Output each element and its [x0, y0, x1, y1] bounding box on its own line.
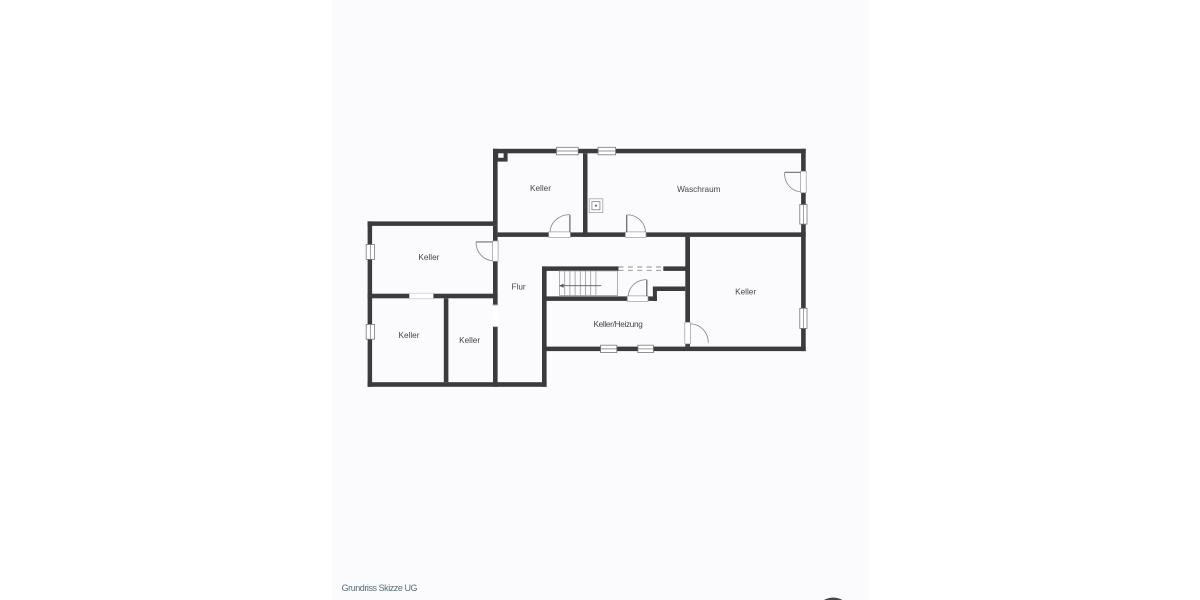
svg-text:Keller: Keller [530, 184, 551, 193]
svg-text:Keller: Keller [399, 331, 420, 340]
svg-text:Keller: Keller [418, 253, 439, 262]
svg-text:Waschraum: Waschraum [677, 185, 721, 194]
svg-text:Keller: Keller [735, 287, 756, 296]
svg-text:Keller: Keller [459, 336, 480, 345]
svg-text:Grundriss Skizze UG: Grundriss Skizze UG [342, 583, 418, 593]
svg-text:Keller/Heizung: Keller/Heizung [593, 320, 643, 329]
svg-text:Flur: Flur [512, 282, 526, 291]
